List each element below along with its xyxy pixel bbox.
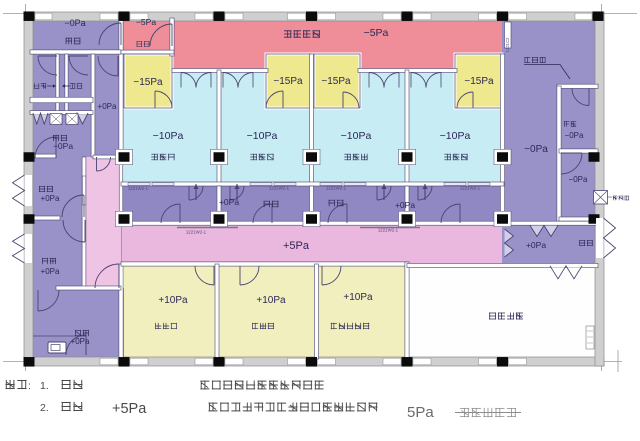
svg-text:+5Pa: +5Pa (283, 240, 310, 252)
svg-text:1221W2-1: 1221W2-1 (128, 186, 149, 191)
svg-text:+10Pa: +10Pa (343, 292, 373, 303)
svg-text:−15Pa: −15Pa (273, 76, 303, 87)
svg-text:+0Pa: +0Pa (219, 197, 239, 207)
svg-text:+0Pa: +0Pa (395, 200, 415, 210)
svg-text:1221W2-1: 1221W2-1 (186, 230, 207, 235)
svg-text:−5Pa: −5Pa (136, 17, 156, 27)
svg-text:−0Pa: −0Pa (524, 144, 548, 155)
svg-text:+0Pa: +0Pa (98, 102, 117, 111)
svg-text:−15Pa: −15Pa (133, 77, 163, 88)
svg-text:+0Pa: +0Pa (41, 194, 60, 203)
svg-text:−10Pa: −10Pa (341, 130, 372, 142)
svg-text:1.: 1. (40, 380, 49, 392)
svg-text:−0Pa: −0Pa (569, 175, 588, 184)
svg-text:+0Pa: +0Pa (71, 337, 90, 346)
svg-text:1221W2-1: 1221W2-1 (460, 186, 481, 191)
svg-text:−5Pa: −5Pa (364, 27, 389, 39)
svg-text:+0Pa: +0Pa (41, 267, 60, 276)
svg-text:5Pa: 5Pa (407, 404, 434, 421)
svg-text:−15Pa: −15Pa (464, 76, 494, 87)
svg-text:+10Pa: +10Pa (256, 295, 286, 306)
svg-text:1221W2-1: 1221W2-1 (326, 186, 347, 191)
svg-text:+5Pa: +5Pa (112, 401, 147, 417)
svg-text:2.: 2. (40, 402, 49, 414)
svg-text:−0Pa: −0Pa (53, 141, 73, 151)
svg-text:1221C2: 1221C2 (505, 37, 510, 52)
svg-text:+10Pa: +10Pa (158, 295, 188, 306)
svg-text:−10Pa: −10Pa (153, 130, 184, 142)
svg-text:−10Pa: −10Pa (440, 130, 471, 142)
svg-text:−10Pa: −10Pa (247, 130, 278, 142)
svg-text:−0Pa: −0Pa (565, 131, 584, 140)
svg-text:1221W2-1: 1221W2-1 (269, 186, 290, 191)
svg-text:−15Pa: −15Pa (321, 76, 351, 87)
svg-text:1221W2-1: 1221W2-1 (378, 228, 399, 233)
svg-text:+0Pa: +0Pa (526, 240, 546, 250)
svg-text:−0Pa: −0Pa (64, 18, 85, 28)
svg-text::: : (28, 380, 31, 392)
